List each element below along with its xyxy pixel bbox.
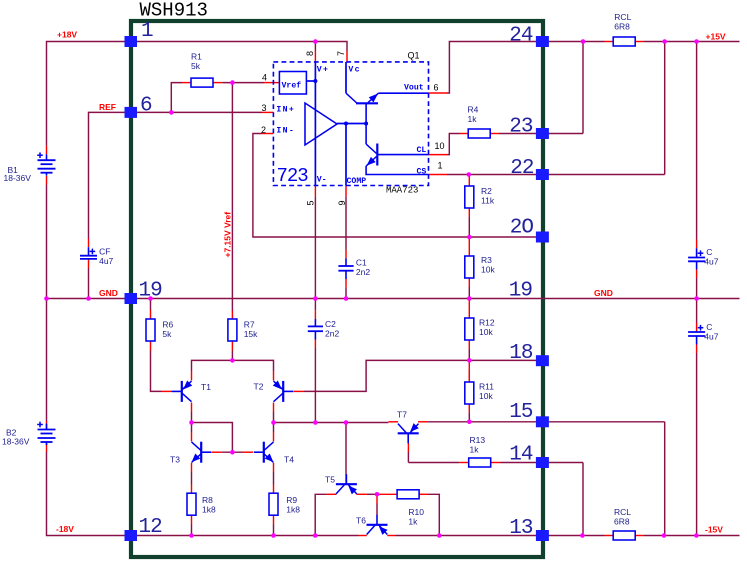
svg-text:10k: 10k: [479, 327, 493, 337]
svg-text:12: 12: [139, 516, 163, 539]
svg-text:7: 7: [336, 51, 346, 56]
svg-text:5k: 5k: [191, 61, 201, 71]
svg-text:4u7: 4u7: [99, 256, 113, 266]
svg-text:8: 8: [305, 51, 315, 56]
svg-text:Q1: Q1: [408, 51, 420, 61]
svg-text:1k8: 1k8: [202, 505, 216, 515]
svg-text:15k: 15k: [244, 329, 258, 339]
svg-text:15: 15: [509, 401, 533, 424]
svg-text:5: 5: [306, 200, 316, 205]
svg-text:RCL: RCL: [614, 507, 631, 517]
svg-text:T1: T1: [201, 382, 211, 392]
svg-text:R13: R13: [470, 435, 486, 445]
svg-text:GND: GND: [594, 288, 613, 298]
svg-text:5k: 5k: [162, 329, 172, 339]
svg-text:V+: V+: [317, 66, 329, 75]
svg-text:18-36V: 18-36V: [4, 173, 32, 183]
svg-text:IN+: IN+: [276, 106, 295, 115]
svg-text:10k: 10k: [481, 265, 495, 275]
svg-text:19: 19: [509, 280, 533, 303]
svg-text:CS: CS: [417, 167, 427, 176]
svg-text:CF: CF: [99, 247, 110, 257]
svg-text:1k: 1k: [468, 114, 478, 124]
svg-text:6: 6: [434, 83, 439, 93]
svg-text:14: 14: [509, 444, 533, 467]
svg-text:C: C: [706, 247, 712, 257]
svg-text:R3: R3: [481, 255, 492, 265]
svg-text:1: 1: [438, 161, 443, 171]
svg-text:Vout: Vout: [404, 84, 424, 93]
svg-text:4u7: 4u7: [704, 332, 718, 342]
svg-text:R11: R11: [479, 382, 494, 392]
svg-text:6R8: 6R8: [614, 22, 630, 32]
svg-text:R1: R1: [191, 52, 202, 62]
svg-text:24: 24: [509, 25, 533, 48]
svg-text:R4: R4: [468, 105, 479, 115]
svg-text:C1: C1: [356, 258, 367, 268]
svg-text:R8: R8: [202, 495, 213, 505]
svg-text:+15V: +15V: [706, 32, 726, 42]
svg-text:T5: T5: [325, 475, 335, 485]
svg-text:-18V: -18V: [56, 524, 74, 534]
svg-text:13: 13: [509, 517, 533, 540]
svg-text:6: 6: [140, 95, 153, 118]
svg-text:2n2: 2n2: [325, 329, 339, 339]
svg-text:RCL: RCL: [614, 12, 631, 22]
svg-text:-15V: -15V: [705, 525, 723, 535]
svg-text:COMP: COMP: [347, 177, 367, 186]
svg-text:R9: R9: [286, 495, 297, 505]
svg-text:R2: R2: [481, 186, 492, 196]
svg-text:10: 10: [435, 141, 445, 151]
svg-text:18: 18: [509, 342, 533, 365]
svg-text:723: 723: [277, 165, 309, 187]
svg-text:T6: T6: [356, 516, 366, 526]
svg-text:IN-: IN-: [276, 127, 295, 136]
svg-text:6R8: 6R8: [614, 516, 630, 526]
svg-text:11k: 11k: [481, 196, 495, 206]
svg-text:1k8: 1k8: [286, 505, 300, 515]
svg-text:C: C: [706, 322, 712, 332]
svg-text:4u7: 4u7: [704, 257, 718, 267]
svg-text:REF: REF: [99, 102, 116, 112]
svg-text:10k: 10k: [479, 391, 493, 401]
svg-text:R6: R6: [162, 320, 173, 330]
svg-text:T3: T3: [170, 455, 180, 465]
svg-text:R7: R7: [244, 320, 255, 330]
svg-text:WSH913: WSH913: [140, 0, 208, 22]
svg-text:C2: C2: [325, 319, 336, 329]
svg-text:9: 9: [337, 200, 347, 205]
svg-text:T2: T2: [254, 382, 264, 392]
svg-text:2: 2: [261, 125, 266, 135]
svg-text:R12: R12: [479, 318, 495, 328]
svg-text:19: 19: [139, 280, 163, 303]
svg-text:T4: T4: [284, 455, 294, 465]
svg-text:4: 4: [262, 73, 267, 83]
svg-text:MAA723: MAA723: [386, 186, 418, 196]
svg-text:T7: T7: [397, 410, 407, 420]
svg-text:18-36V: 18-36V: [2, 437, 30, 447]
svg-text:2O: 2O: [510, 217, 534, 240]
svg-text:GND: GND: [99, 288, 118, 298]
svg-text:23: 23: [509, 116, 533, 139]
svg-text:Vref: Vref: [282, 81, 302, 91]
svg-text:22: 22: [510, 157, 534, 180]
svg-text:1k: 1k: [470, 445, 480, 455]
svg-text:V-: V-: [317, 176, 327, 185]
svg-text:2n2: 2n2: [356, 267, 370, 277]
svg-text:1k: 1k: [408, 517, 418, 527]
svg-text:+18V: +18V: [57, 30, 77, 40]
svg-text:CL: CL: [417, 146, 427, 155]
svg-text:Vc: Vc: [348, 66, 360, 75]
svg-text:1: 1: [141, 20, 154, 43]
svg-text:R10: R10: [408, 507, 424, 517]
svg-text:3: 3: [261, 103, 266, 113]
svg-text:+7.15V Vref: +7.15V Vref: [223, 212, 233, 258]
